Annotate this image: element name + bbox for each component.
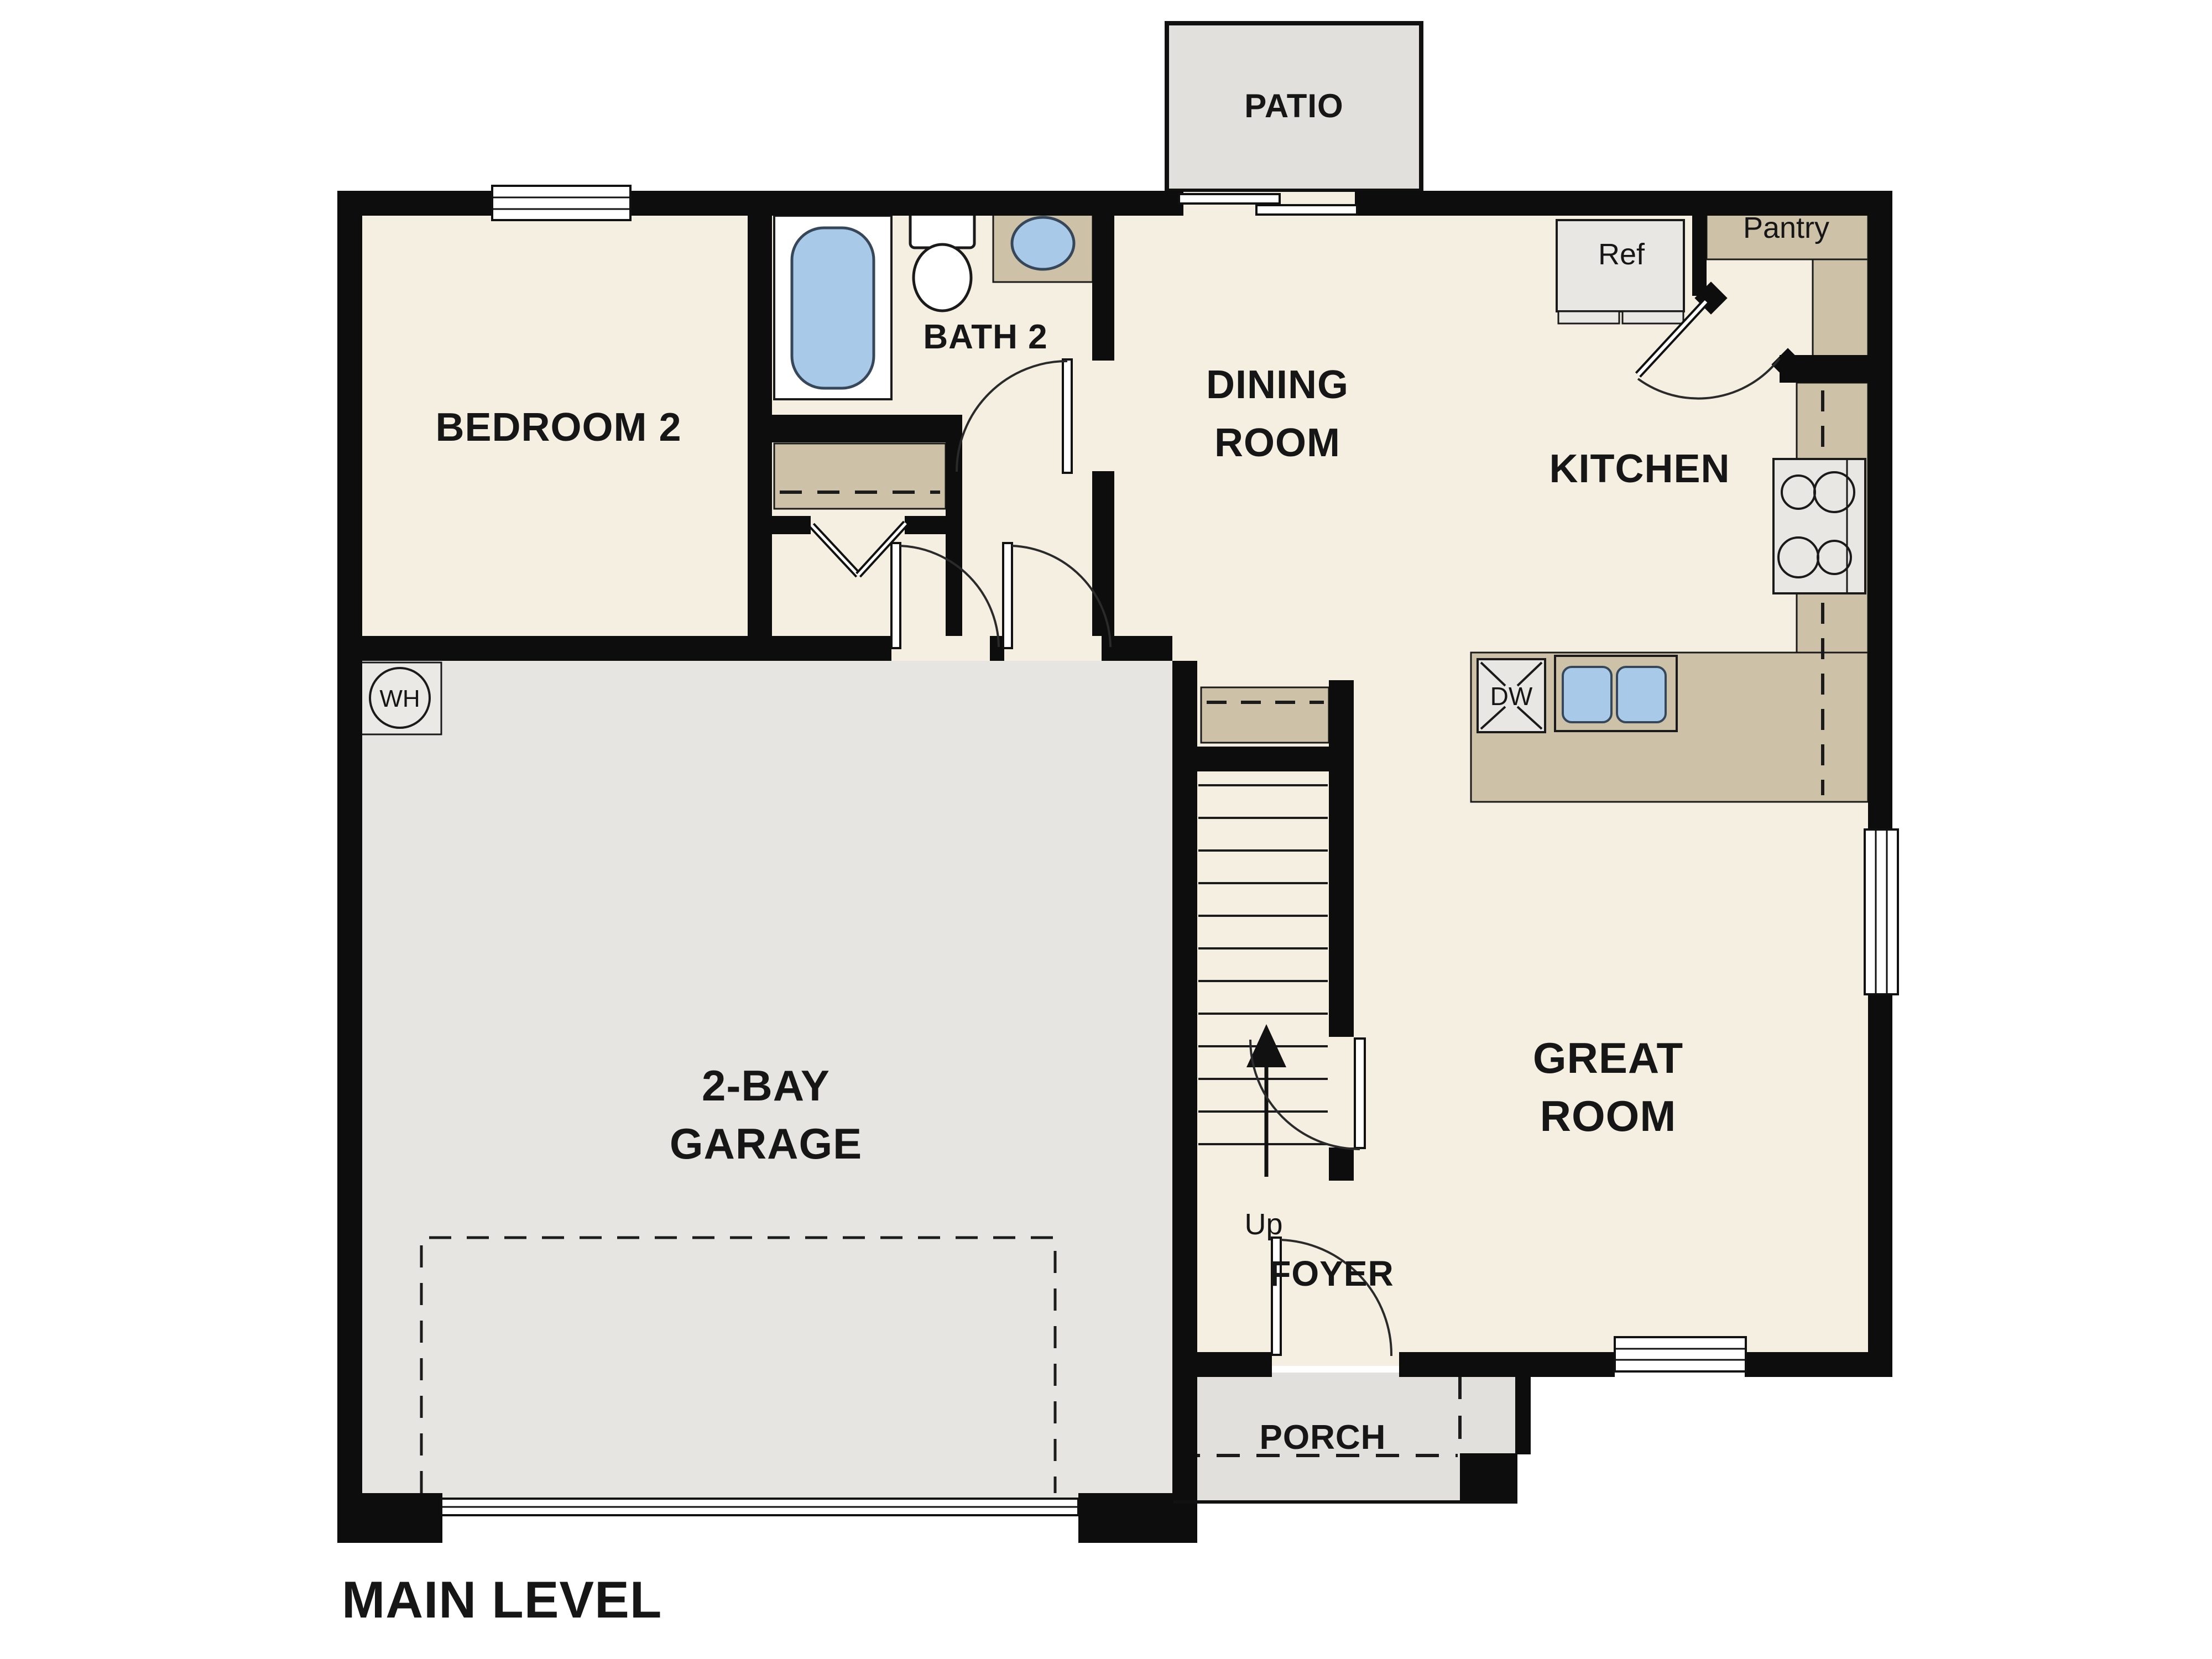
refrigerator-door-left xyxy=(1558,311,1619,324)
wall-hall-south-a xyxy=(337,636,891,661)
wall-right xyxy=(1868,191,1892,1377)
floor-plan: PATIO BEDROOM 2 BATH 2 DINING ROOM KITCH… xyxy=(0,0,2212,1659)
dining-label-line1: DINING xyxy=(1206,363,1349,407)
wall-pantry-stub xyxy=(1692,216,1707,296)
stove-icon xyxy=(1773,459,1865,593)
bedroom-closet-shelf xyxy=(774,444,946,509)
stairs-up-label: Up xyxy=(1244,1208,1282,1241)
wall-greatroom-front-right xyxy=(1745,1352,1892,1377)
wall-bath-dining-top xyxy=(1092,216,1114,361)
plan-title: MAIN LEVEL xyxy=(342,1571,662,1629)
wall-bath-closet xyxy=(758,415,962,442)
dining-label-line2: ROOM xyxy=(1214,421,1340,465)
greatroom-front-window-icon xyxy=(1615,1337,1746,1371)
porch-pillar xyxy=(1460,1453,1517,1503)
patio-label: PATIO xyxy=(1244,87,1343,124)
garage-door-icon xyxy=(441,1499,1078,1515)
wall-hall-south-b xyxy=(1102,636,1172,661)
bath2-label: BATH 2 xyxy=(923,318,1047,356)
garage-label-line1: 2-BAY xyxy=(702,1061,830,1110)
bedroom2-label: BEDROOM 2 xyxy=(435,405,681,450)
porch-label: PORCH xyxy=(1260,1418,1386,1457)
garage-label-line2: GARAGE xyxy=(670,1119,862,1168)
wall-left xyxy=(337,191,362,1543)
bedroom-window-icon xyxy=(492,186,630,220)
wall-closet-stub-right xyxy=(905,516,946,534)
bath-sink-icon xyxy=(993,206,1093,282)
coat-closet-shelf xyxy=(1201,687,1329,743)
refrigerator-door-right xyxy=(1623,311,1683,324)
wall-greatroom-front-left xyxy=(1399,1352,1615,1377)
pantry-side-shelf xyxy=(1813,259,1868,372)
wall-top-left xyxy=(337,191,1183,216)
toilet-icon xyxy=(910,206,974,311)
wall-closet-stub-left xyxy=(748,516,811,534)
refrigerator-label: Ref xyxy=(1598,238,1645,271)
water-heater-label: WH xyxy=(379,685,420,712)
wall-stair-right-stub xyxy=(1329,1147,1354,1181)
wall-stair-top xyxy=(1172,747,1354,771)
patio-sliding-door-icon xyxy=(1179,192,1357,215)
dishwasher-label: DW xyxy=(1490,682,1533,711)
wall-porch-right xyxy=(1515,1373,1531,1454)
wall-garage-corner-left xyxy=(337,1493,442,1543)
greatroom-label-line1: GREAT xyxy=(1533,1034,1683,1082)
wall-stair-right xyxy=(1329,680,1354,1037)
pantry-label: Pantry xyxy=(1743,211,1829,244)
greatroom-label-line2: ROOM xyxy=(1540,1092,1677,1140)
floor-plan-drawing: PATIO BEDROOM 2 BATH 2 DINING ROOM KITCH… xyxy=(0,0,2212,1659)
foyer-label: FOYER xyxy=(1269,1254,1394,1293)
greatroom-side-window-icon xyxy=(1865,830,1898,994)
bathtub-icon xyxy=(774,216,891,399)
kitchen-label: KITCHEN xyxy=(1550,447,1730,491)
kitchen-sink-icon xyxy=(1555,656,1677,731)
wall-garage-right xyxy=(1172,661,1197,1543)
